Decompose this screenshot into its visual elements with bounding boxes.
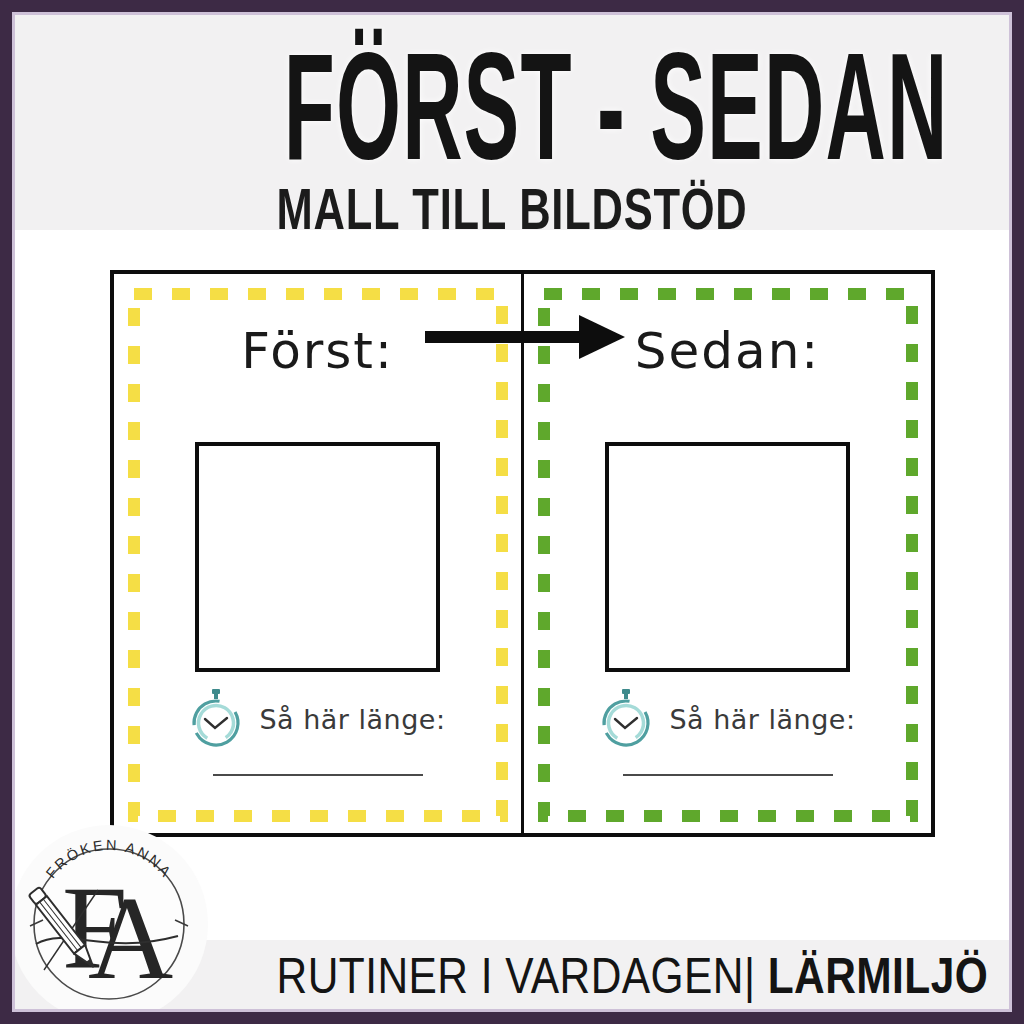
first-duration-label: Så här länge: bbox=[259, 704, 445, 735]
page-title: FÖRST - SEDAN bbox=[284, 30, 949, 182]
header-band: FÖRST - SEDAN MALL TILL BILDSTÖD bbox=[12, 12, 1012, 230]
stopwatch-icon bbox=[599, 689, 653, 749]
stopwatch-icon bbox=[189, 689, 243, 749]
then-duration-label: Så här länge: bbox=[669, 704, 855, 735]
then-picture-placeholder bbox=[605, 442, 850, 672]
first-write-line bbox=[213, 774, 423, 776]
page-subtitle: MALL TILL BILDSTÖD bbox=[276, 180, 747, 238]
series-label: RUTINER I VARDAGEN| bbox=[276, 948, 755, 1004]
logo-monogram-a: A bbox=[88, 873, 173, 1004]
footer-series-text: RUTINER I VARDAGEN| LÄRMILJÖ bbox=[276, 947, 988, 1005]
first-picture-placeholder bbox=[195, 442, 440, 672]
right-arrow-icon bbox=[423, 314, 628, 360]
category-label: LÄRMILJÖ bbox=[767, 948, 988, 1004]
froken-anna-logo: FRÖKEN ANNA F A bbox=[6, 820, 211, 1024]
then-write-line bbox=[623, 774, 833, 776]
